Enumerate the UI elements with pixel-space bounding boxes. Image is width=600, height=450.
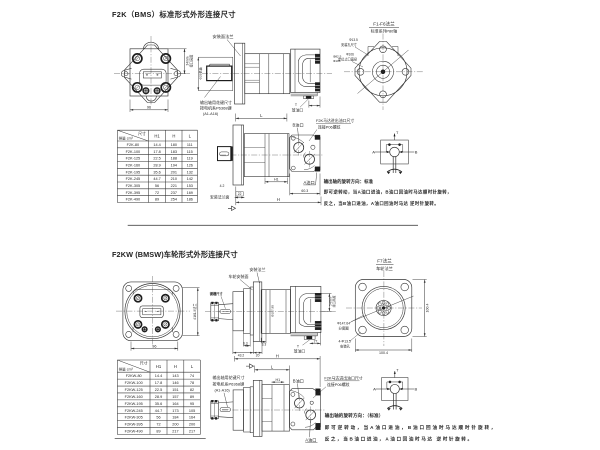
svg-text:157: 157 xyxy=(172,395,178,399)
svg-text:即可逆转动，当A油口进油，B油口回油时马达顺时针旋转，: 即可逆转动，当A油口进油，B油口回油时马达顺时针旋转， xyxy=(324,189,452,196)
svg-text:111: 111 xyxy=(187,143,193,147)
svg-text:28.9: 28.9 xyxy=(155,395,162,399)
svg-text:44.7: 44.7 xyxy=(153,177,160,181)
svg-text:17.8: 17.8 xyxy=(153,150,160,154)
svg-text:180: 180 xyxy=(171,143,177,147)
svg-text:100.4: 100.4 xyxy=(379,351,388,355)
svg-text:输出轴用花键尺寸: 输出轴用花键尺寸 xyxy=(200,99,232,105)
svg-text:Φ106: Φ106 xyxy=(346,53,354,57)
svg-text:F2K-305: F2K-305 xyxy=(126,184,141,188)
svg-text:放油口: 放油口 xyxy=(292,107,304,112)
svg-text:44.7: 44.7 xyxy=(155,409,162,413)
svg-text:Φ25机轴: Φ25机轴 xyxy=(198,67,203,79)
svg-text:#161.9法兰: #161.9法兰 xyxy=(192,303,197,319)
svg-text:221: 221 xyxy=(171,184,177,188)
svg-text:56: 56 xyxy=(156,416,160,420)
svg-text:F2KW-490: F2KW-490 xyxy=(125,430,143,434)
svg-text:194: 194 xyxy=(171,163,177,167)
svg-text:89: 89 xyxy=(190,395,194,399)
svg-text:201: 201 xyxy=(171,170,177,174)
svg-text:89: 89 xyxy=(156,430,160,434)
svg-text:接口高度: 接口高度 xyxy=(188,54,193,68)
svg-text:F7法兰: F7法兰 xyxy=(377,258,392,265)
svg-text:146: 146 xyxy=(172,381,178,385)
svg-text:89: 89 xyxy=(155,198,159,202)
svg-text:217: 217 xyxy=(172,430,178,434)
svg-text:119: 119 xyxy=(187,157,193,161)
svg-text:F2K-80: F2K-80 xyxy=(127,143,139,147)
svg-text:153: 153 xyxy=(187,184,193,188)
svg-text:35.6: 35.6 xyxy=(155,402,162,406)
svg-text:F2KW-160: F2KW-160 xyxy=(125,395,143,399)
svg-text:F2KW-195: F2KW-195 xyxy=(125,402,143,406)
svg-text:排量 cm³: 排量 cm³ xyxy=(119,367,134,372)
svg-text:183: 183 xyxy=(171,150,177,154)
svg-text:H1: H1 xyxy=(156,364,162,369)
svg-text:74: 74 xyxy=(190,374,194,378)
svg-text:143: 143 xyxy=(172,374,178,378)
svg-text:210: 210 xyxy=(171,177,177,181)
svg-text:22.5: 22.5 xyxy=(153,157,160,161)
svg-text:定位止口直径: 定位止口直径 xyxy=(338,57,358,62)
svg-text:237: 237 xyxy=(171,191,177,195)
svg-text:95: 95 xyxy=(190,402,194,406)
svg-text:反之，当B油口进油，A油口回油时马达 逆时针旋转。: 反之，当B油口进油，A油口回油时马达 逆时针旋转。 xyxy=(325,435,474,442)
svg-text:132: 132 xyxy=(187,170,193,174)
svg-text:排量 cm³: 排量 cm³ xyxy=(119,135,134,140)
svg-text:(A1-A16): (A1-A16) xyxy=(215,388,231,392)
svg-text:B: B xyxy=(415,150,418,155)
svg-text:F1-F6法兰: F1-F6法兰 xyxy=(373,21,395,28)
svg-text:Φ147.64: Φ147.64 xyxy=(337,321,350,325)
svg-text:接口高度: 接口高度 xyxy=(331,295,336,307)
svg-text:车轮法兰: 车轮法兰 xyxy=(376,265,393,272)
svg-text:尺寸: 尺寸 xyxy=(140,361,148,366)
svg-text:F2K-395: F2K-395 xyxy=(126,191,141,195)
svg-text:142: 142 xyxy=(187,177,193,181)
svg-text:F2KW-100: F2KW-100 xyxy=(125,381,143,385)
svg-text:F2K-490: F2K-490 xyxy=(126,198,141,202)
svg-text:按电机系P6368键: 按电机系P6368键 xyxy=(213,380,245,386)
svg-text:安装孔尺寸: 安装孔尺寸 xyxy=(341,42,358,47)
svg-text:F2K马达进出油口尺寸: F2K马达进出油口尺寸 xyxy=(316,118,354,123)
svg-text:连接P06螺纹: 连接P06螺纹 xyxy=(318,125,341,130)
svg-text:F2K-125: F2K-125 xyxy=(126,157,141,161)
svg-text:B: B xyxy=(415,387,418,392)
svg-text:安装法兰面: 安装法兰面 xyxy=(210,195,230,200)
svg-text:126: 126 xyxy=(187,163,193,167)
svg-text:105: 105 xyxy=(189,409,195,413)
svg-text:H: H xyxy=(277,197,280,202)
svg-text:放油口: 放油口 xyxy=(294,349,306,354)
svg-text:56: 56 xyxy=(155,184,159,188)
svg-text:Φ107.95: Φ107.95 xyxy=(271,305,275,317)
svg-text:4.2: 4.2 xyxy=(220,184,225,188)
svg-text:184: 184 xyxy=(172,416,178,420)
svg-text:43.2: 43.2 xyxy=(238,353,245,357)
svg-text:A: A xyxy=(372,150,375,155)
svg-text:186: 186 xyxy=(187,198,193,202)
svg-text:200: 200 xyxy=(189,423,195,427)
svg-text:F2KW-125: F2KW-125 xyxy=(125,388,143,392)
svg-text:F2KW (BMSW)车轮形式外形连接尺寸: F2KW (BMSW)车轮形式外形连接尺寸 xyxy=(112,250,238,259)
svg-text:188: 188 xyxy=(171,157,177,161)
svg-text:72: 72 xyxy=(155,191,159,195)
svg-text:分度圆: 分度圆 xyxy=(339,325,350,330)
svg-text:20: 20 xyxy=(256,353,260,357)
svg-text:F2K-100: F2K-100 xyxy=(126,150,141,154)
svg-text:96: 96 xyxy=(152,344,156,348)
svg-text:连接P06螺纹: 连接P06螺纹 xyxy=(327,382,350,387)
svg-text:27: 27 xyxy=(314,339,318,343)
svg-text:按电机系P6368键: 按电机系P6368键 xyxy=(200,105,232,111)
svg-text:安装面法兰: 安装面法兰 xyxy=(213,33,234,40)
svg-text:200: 200 xyxy=(172,423,178,427)
svg-text:164: 164 xyxy=(189,416,195,420)
svg-text:72: 72 xyxy=(156,423,160,427)
svg-text:F2KW-80: F2KW-80 xyxy=(126,374,142,378)
svg-text:输出轴用花键尺寸: 输出轴用花键尺寸 xyxy=(213,374,245,380)
svg-text:3.3: 3.3 xyxy=(262,343,267,347)
svg-text:F2K-160: F2K-160 xyxy=(126,163,141,167)
svg-text:151: 151 xyxy=(172,388,178,392)
svg-text:35.6: 35.6 xyxy=(153,170,160,174)
svg-text:217: 217 xyxy=(189,430,195,434)
svg-text:115: 115 xyxy=(187,150,193,154)
svg-text:F2KW-305: F2KW-305 xyxy=(125,416,143,420)
svg-text:169: 169 xyxy=(187,191,193,195)
svg-text:H: H xyxy=(174,364,177,369)
svg-text:H: H xyxy=(276,354,279,359)
svg-text:即可逆转动，当A油口进油，B油口回油时马达顺时针旋转，: 即可逆转动，当A油口进油，B油口回油时马达顺时针旋转， xyxy=(325,424,498,431)
svg-text:输出轴的旋转方向：标准: 输出轴的旋转方向：标准 xyxy=(324,178,374,185)
svg-text:反之，当B油口进油，A油口回油时马达 逆时针旋转。: 反之，当B油口进油，A油口回油时马达 逆时针旋转。 xyxy=(324,200,439,207)
svg-text:78: 78 xyxy=(190,381,194,385)
svg-text:标准系列P80轴: 标准系列P80轴 xyxy=(371,29,397,34)
svg-text:96: 96 xyxy=(147,106,151,110)
svg-text:输出轴的旋转方向：（标准）: 输出轴的旋转方向：（标准） xyxy=(325,412,384,419)
svg-text:尺寸: 尺寸 xyxy=(138,131,146,136)
svg-text:22: 22 xyxy=(238,192,242,196)
svg-text:164: 164 xyxy=(172,402,178,406)
svg-text:安装法兰: 安装法兰 xyxy=(250,266,266,272)
svg-text:(A1-A16): (A1-A16) xyxy=(203,112,219,116)
svg-text:28.9: 28.9 xyxy=(153,163,160,167)
svg-text:F2KW-395: F2KW-395 xyxy=(125,423,143,427)
svg-text:车轮安装面: 车轮安装面 xyxy=(229,273,249,279)
svg-text:22.5: 22.5 xyxy=(155,388,162,392)
svg-text:F2K-195: F2K-195 xyxy=(126,170,141,174)
svg-text:F2K（BMS）标准形式外形连接尺寸: F2K（BMS）标准形式外形连接尺寸 xyxy=(112,10,236,19)
svg-text:安装孔: 安装孔 xyxy=(340,344,351,349)
svg-text:F2K马达进出油口尺寸: F2K马达进出油口尺寸 xyxy=(324,375,362,380)
svg-text:4-Φ13.5: 4-Φ13.5 xyxy=(339,340,351,344)
svg-text:173: 173 xyxy=(172,409,178,413)
svg-text:14.4: 14.4 xyxy=(155,374,162,378)
svg-text:82: 82 xyxy=(190,388,194,392)
svg-text:F2KW-245: F2KW-245 xyxy=(125,409,143,413)
svg-text:H1: H1 xyxy=(154,133,160,138)
svg-text:F2K-245: F2K-245 xyxy=(126,177,141,181)
svg-text:100.4: 100.4 xyxy=(426,304,430,313)
svg-text:H1: H1 xyxy=(274,178,279,182)
svg-text:60.3: 60.3 xyxy=(301,189,308,193)
svg-text:254: 254 xyxy=(171,198,177,202)
svg-text:H1: H1 xyxy=(275,378,280,382)
svg-text:A: A xyxy=(373,387,376,392)
svg-text:14.4: 14.4 xyxy=(153,143,160,147)
svg-text:H: H xyxy=(172,133,175,138)
svg-text:Φ13.5: Φ13.5 xyxy=(349,38,358,42)
svg-text:B油口: B油口 xyxy=(293,122,304,129)
svg-text:17.8: 17.8 xyxy=(155,381,162,385)
svg-text:B油口: B油口 xyxy=(293,377,304,384)
svg-text:键槽尺寸: 键槽尺寸 xyxy=(209,291,224,296)
